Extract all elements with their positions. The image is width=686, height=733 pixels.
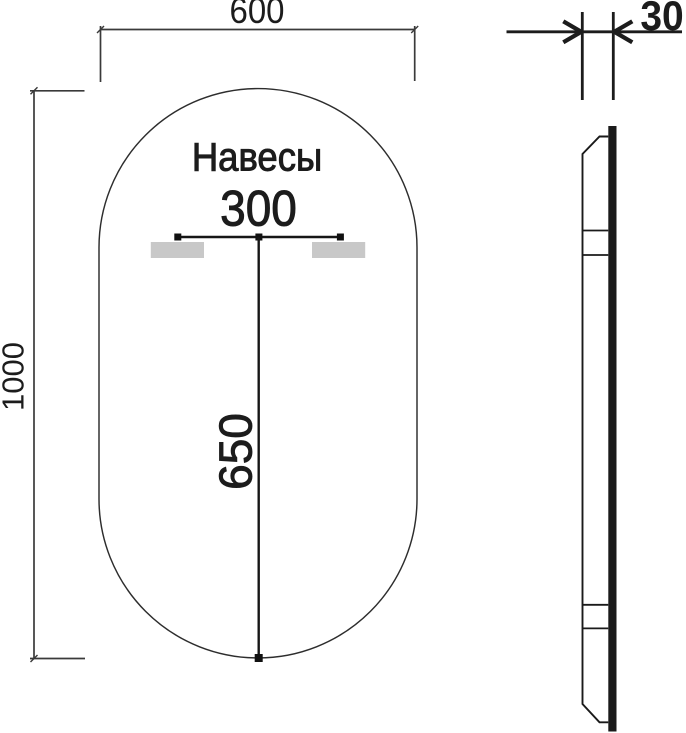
svg-text:300: 300 bbox=[220, 181, 297, 237]
svg-text:Навесы: Навесы bbox=[192, 135, 322, 180]
svg-text:1000: 1000 bbox=[0, 342, 31, 411]
svg-text:30: 30 bbox=[640, 0, 683, 39]
svg-text:650: 650 bbox=[210, 413, 262, 490]
svg-text:600: 600 bbox=[229, 0, 284, 31]
